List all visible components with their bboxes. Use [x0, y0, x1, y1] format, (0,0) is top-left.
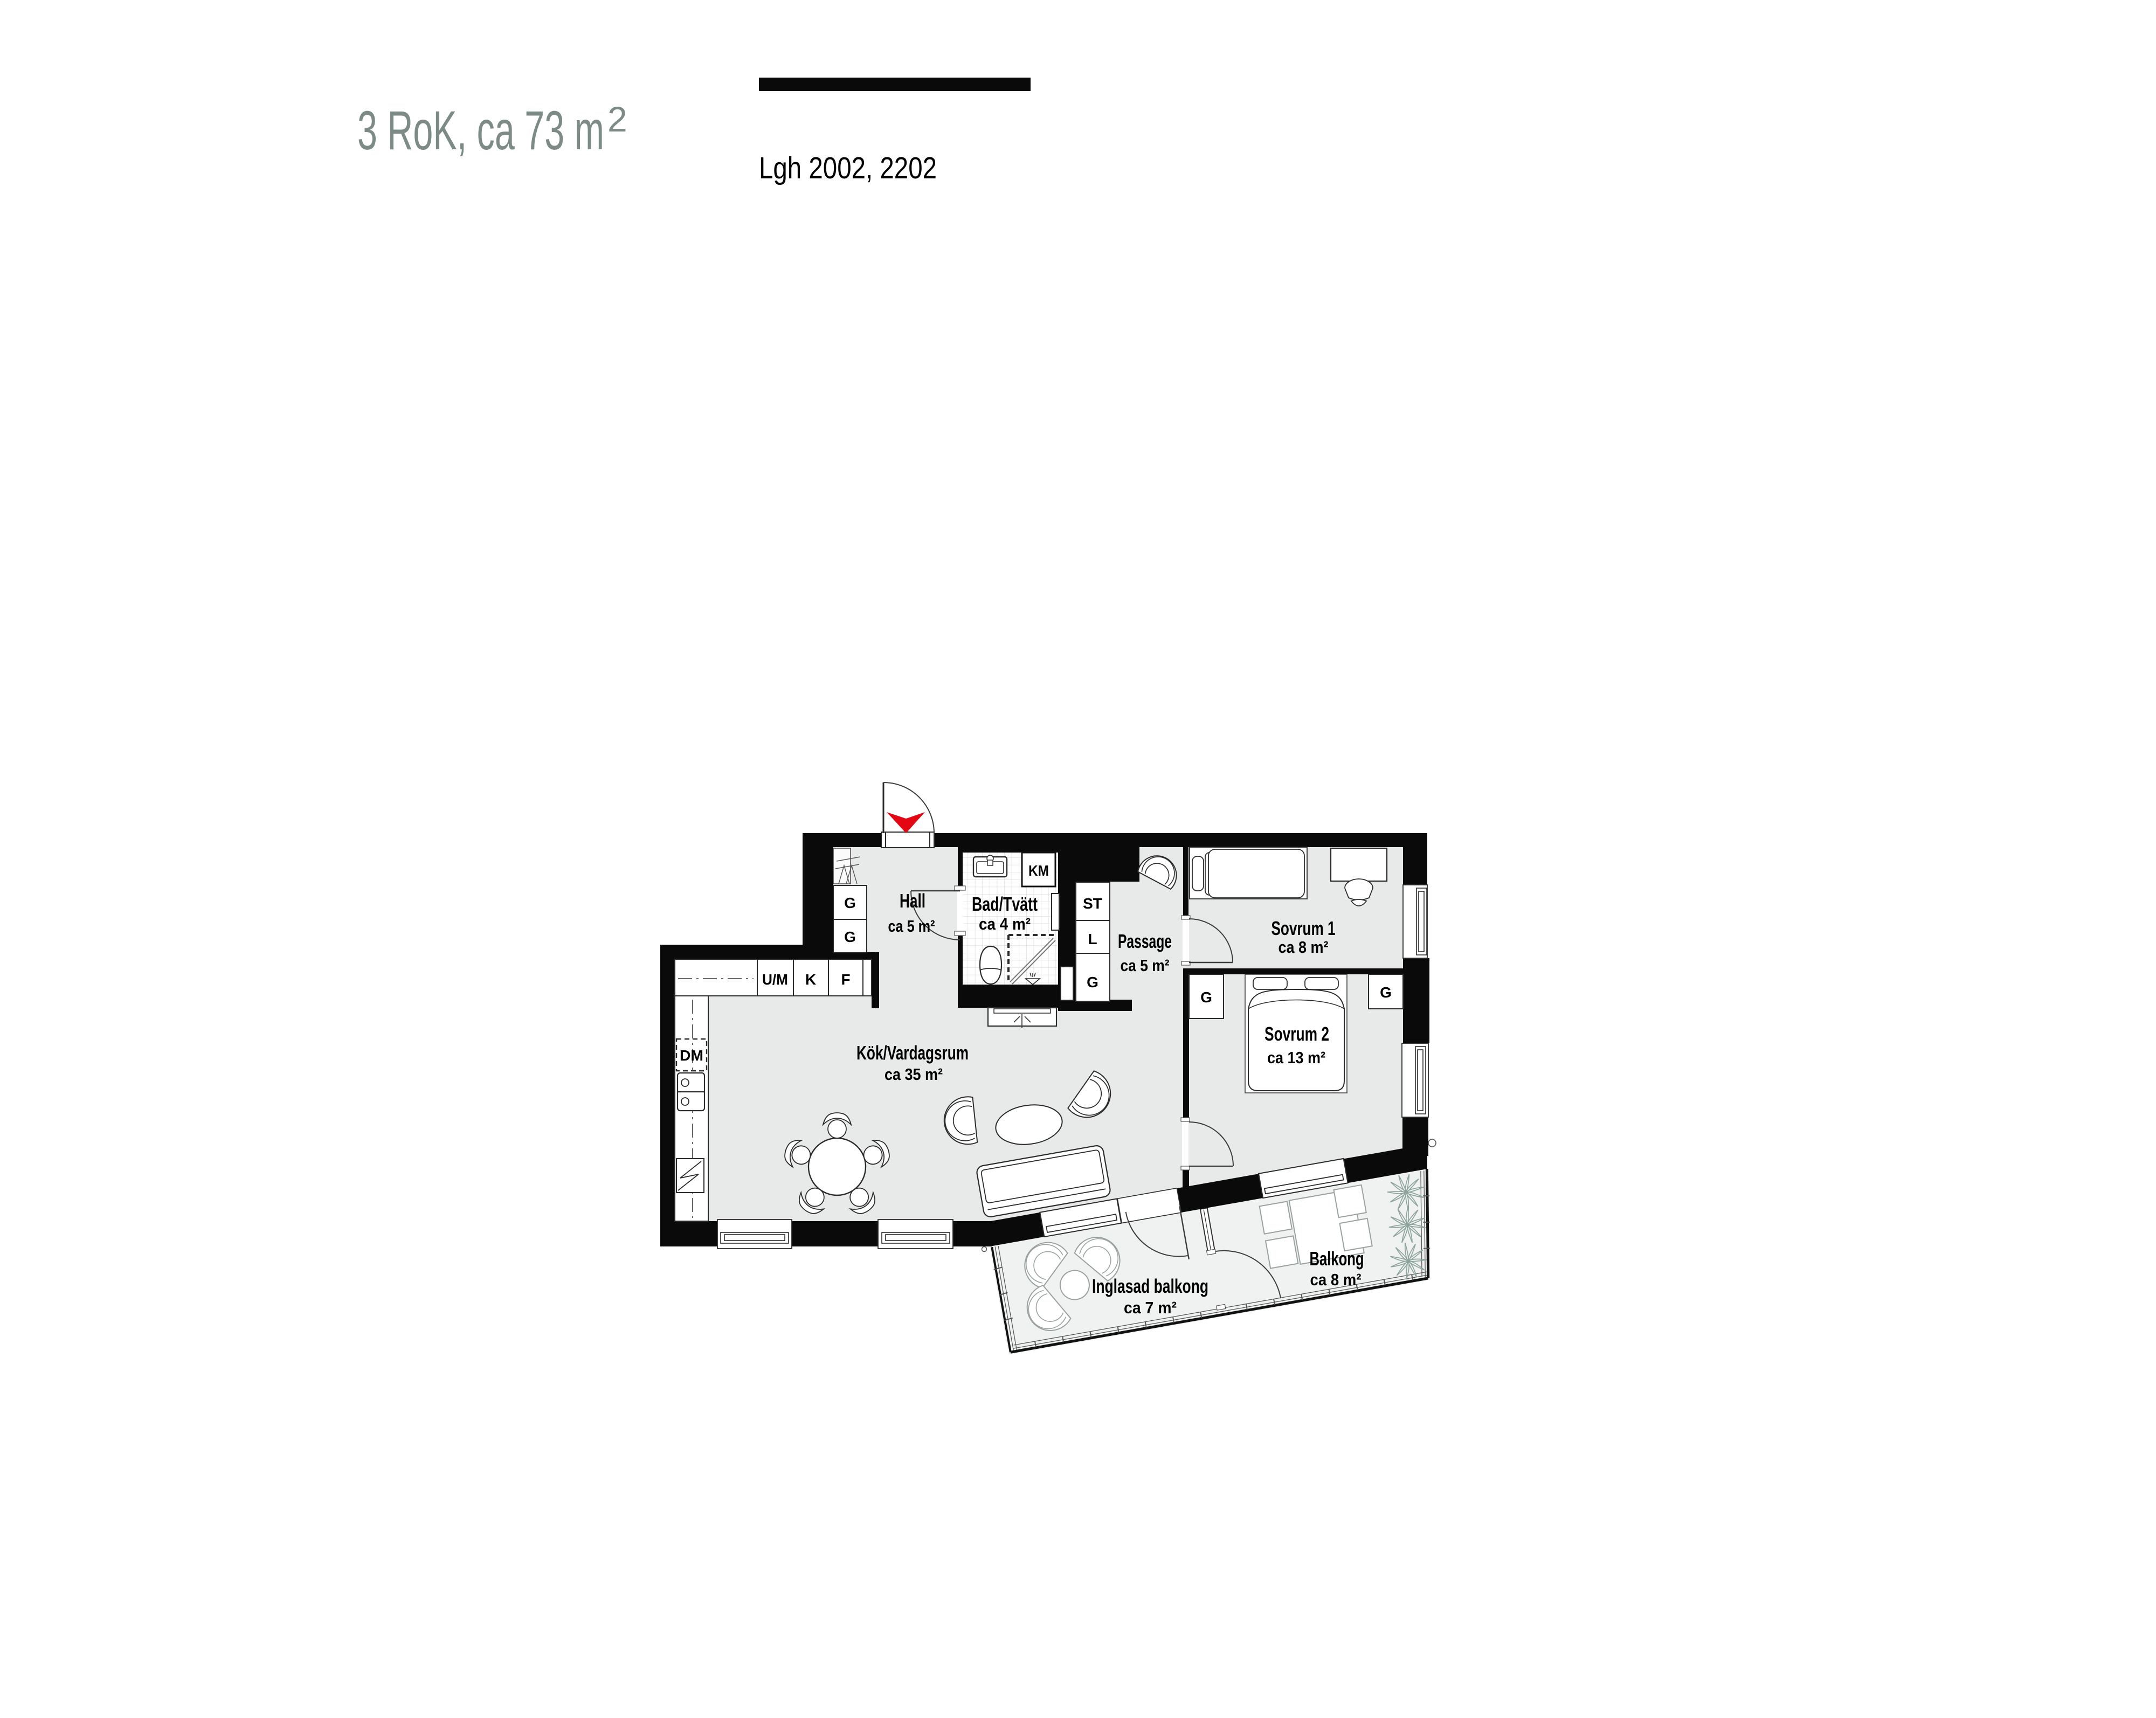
svg-text:ca 7 m²: ca 7 m²	[1124, 1298, 1177, 1317]
svg-text:ca 5 m²: ca 5 m²	[1121, 956, 1170, 975]
svg-text:F: F	[841, 971, 850, 988]
svg-text:ca 5 m²: ca 5 m²	[888, 917, 935, 936]
svg-text:K: K	[805, 971, 816, 988]
svg-text:G: G	[1380, 984, 1392, 1001]
svg-text:Passage: Passage	[1118, 930, 1172, 952]
svg-text:L: L	[1088, 931, 1097, 947]
svg-text:Inglasad balkong: Inglasad balkong	[1092, 1275, 1208, 1297]
svg-text:2: 2	[607, 99, 627, 139]
svg-text:Bad/Tvätt: Bad/Tvätt	[972, 893, 1038, 915]
svg-text:ca 35 m²: ca 35 m²	[884, 1065, 943, 1084]
svg-text:G: G	[844, 929, 856, 945]
svg-text:ca 8 m²: ca 8 m²	[1279, 938, 1329, 957]
svg-text:Lgh 2002, 2202: Lgh 2002, 2202	[759, 151, 937, 185]
svg-text:DM: DM	[680, 1047, 703, 1064]
svg-text:KM: KM	[1028, 862, 1049, 879]
svg-text:Hall: Hall	[900, 890, 925, 912]
svg-text:ca 4 m²: ca 4 m²	[979, 915, 1031, 933]
svg-text:Kök/Vardagsrum: Kök/Vardagsrum	[856, 1042, 969, 1064]
svg-text:3 RoK, ca 73 m: 3 RoK, ca 73 m	[357, 100, 604, 161]
svg-text:Sovrum 2: Sovrum 2	[1264, 1023, 1329, 1045]
svg-text:ST: ST	[1083, 895, 1102, 912]
svg-text:ca 8 m²: ca 8 m²	[1310, 1270, 1362, 1289]
svg-text:G: G	[844, 895, 856, 911]
svg-text:Balkong: Balkong	[1310, 1248, 1364, 1270]
svg-text:Sovrum 1: Sovrum 1	[1272, 917, 1336, 939]
svg-text:ca 13 m²: ca 13 m²	[1267, 1048, 1325, 1067]
svg-text:G: G	[1200, 989, 1212, 1006]
svg-text:G: G	[1087, 974, 1098, 990]
svg-text:U/M: U/M	[762, 971, 788, 988]
